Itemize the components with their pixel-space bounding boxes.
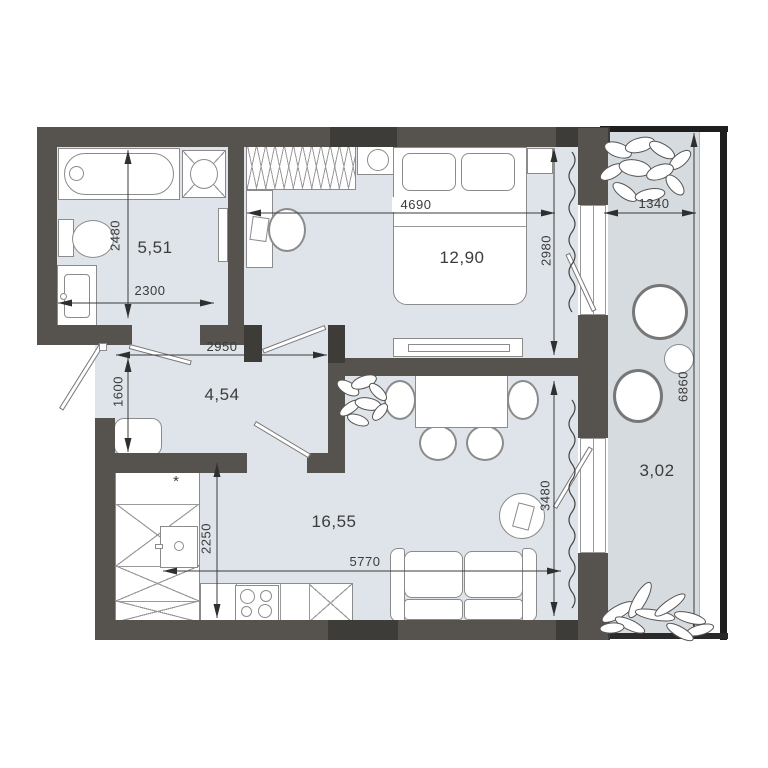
wall-right-middle [578,315,608,438]
room-label-balcony: 3,02 [622,461,692,481]
wardrobe [246,143,356,190]
dining-chair-left [384,380,416,420]
floor-plan: 2480 2300 4690 2980 2950 1600 2250 5770 … [0,0,768,768]
dining-chair-bottom-right [466,425,504,461]
balcony-walkway-strip [699,132,720,633]
dimension-label-living-height: 3480 [538,472,553,520]
entrance-door-hinge [99,343,107,351]
wall-bottom-structural [328,620,398,640]
room-label-bedroom: 12,90 [427,248,497,268]
ceiling-light-box [357,145,397,175]
burner [260,590,272,602]
wall-left-lower [95,418,115,623]
sink-faucet [60,293,67,300]
pillow-right [461,153,515,191]
bathroom-sink [64,274,90,318]
wall-kitchen-top [97,453,247,473]
dining-chair-bottom-left [419,425,457,461]
wall-left-upper [37,127,57,345]
wall-bedroom-living-divider [345,358,578,376]
dimension-label-balcony-height: 6860 [676,363,691,411]
desk-chair [268,208,306,252]
tv [408,344,510,352]
room-label-hallway: 4,54 [187,385,257,405]
bed [393,147,527,305]
dimension-label-bedroom-width: 4690 [392,197,440,212]
burner [241,606,252,617]
burner [258,604,272,618]
wall-top-structural [330,127,397,147]
wall-pilaster [244,325,262,362]
balcony-glazing-right [720,126,727,640]
washing-machine-drum [190,159,218,189]
blanket-fold-line [394,226,526,227]
dining-chair-right [507,380,539,420]
bathroom-door-slab [218,208,228,262]
dimension-label-kitchen-depth: 2250 [199,515,214,563]
balcony-glazing-bottom [608,633,728,639]
wall-hallway-right-structural [328,325,345,363]
dimension-label-hallway-width: 2950 [198,339,246,354]
bathtub-faucet [69,166,84,181]
sofa-seat-left [404,599,463,620]
sofa-cushion-left [404,551,463,598]
wall-bathroom-bottom [37,325,132,345]
window-frame-line [593,206,594,314]
sofa-seat-right [464,599,523,620]
book [512,502,535,531]
window-frame-line [593,439,594,552]
dimension-label-living-width: 5770 [341,554,389,569]
hallway-cabinet [114,418,162,456]
dimension-label-balcony-width: 1340 [630,196,678,211]
counter-section [116,566,199,601]
dining-table [415,368,508,428]
dimension-label-bathroom-width: 2300 [126,283,174,298]
wall-right-lower [578,553,608,640]
kitchen-sink-drain [174,541,184,551]
nightstand [527,148,553,174]
kitchen-sink [160,526,198,568]
burner [240,589,255,604]
pillow-left [402,153,456,191]
fridge [309,584,352,622]
balcony-chair-top [632,284,688,340]
bathroom-vanity [57,265,97,327]
stove [235,585,279,621]
counter-corner-section [116,601,199,622]
room-label-bathroom: 5,51 [120,238,190,258]
counter-divider [280,584,281,622]
washing-machine [182,150,226,198]
wall-right-upper [578,128,608,205]
balcony-chair-bottom [613,369,663,423]
ceiling-light-icon [367,149,389,171]
wall-top [37,127,610,147]
wall-kitchen-top-jamb [307,453,345,473]
sofa-cushion-right [464,551,523,598]
tv-console [393,338,523,357]
dimension-label-hallway-height: 1600 [111,368,126,416]
bathtub [58,148,180,200]
footnote-asterisk: * [168,473,184,490]
room-label-living: 16,55 [299,512,369,532]
kitchen-faucet [155,544,163,549]
sofa-armrest-right [522,548,537,622]
wall-bathroom-right [228,145,244,345]
dimension-label-bedroom-height: 2980 [539,227,554,275]
sofa-armrest-left [390,548,405,622]
laptop [249,216,269,242]
balcony-door-bedroom [580,205,606,315]
